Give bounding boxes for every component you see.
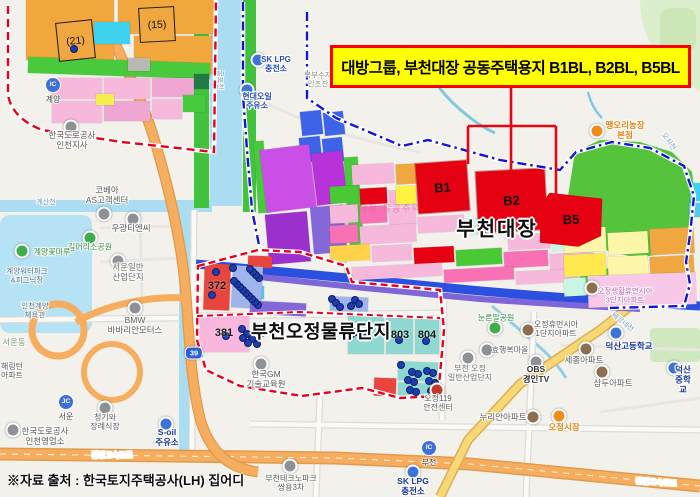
map-label: 서운일반 산업단지 bbox=[112, 263, 143, 283]
map-label: 인천계양 체육관 bbox=[21, 302, 49, 319]
map-label: 부천테크노파크 쌍용3차 bbox=[265, 474, 317, 492]
map-label: 오정휴먼시아 1단지아파트 bbox=[534, 320, 578, 338]
map-label: 계산천 bbox=[36, 199, 55, 207]
land-parcel bbox=[300, 110, 323, 136]
map-label: S-oil 주유소 bbox=[155, 428, 178, 448]
poi-marker bbox=[6, 423, 21, 438]
land-parcel bbox=[352, 263, 443, 281]
tree-dot bbox=[397, 361, 405, 369]
badge-name: 부천 bbox=[421, 457, 437, 468]
map-label: 세종아파트 bbox=[564, 356, 603, 366]
land-parcel bbox=[374, 378, 397, 397]
map-label: 현대오일 주유소 bbox=[242, 92, 271, 110]
callout-banner: 대방그룹, 부천대장 공동주택용지 B1BL, B2BL, B5BL bbox=[330, 45, 691, 88]
map-label: 경인고속도로 bbox=[91, 452, 132, 461]
map-label: 해링턴 아파트 bbox=[1, 362, 23, 380]
land-parcel bbox=[323, 111, 345, 136]
jc-icon: JC bbox=[58, 394, 74, 410]
tree-dot bbox=[408, 368, 416, 376]
tree-dot bbox=[336, 303, 344, 311]
map-label: 눈른말공원 bbox=[478, 313, 515, 322]
map-label: OBS 경인TV bbox=[523, 365, 550, 385]
tree-dot bbox=[230, 277, 238, 285]
poi-marker bbox=[128, 301, 143, 316]
land-parcel bbox=[194, 74, 209, 89]
map-label: 한국도로공사 인천지사 bbox=[49, 131, 96, 151]
land-parcel bbox=[649, 227, 694, 255]
jc-badge: JC서운 bbox=[58, 394, 74, 422]
tree-dot bbox=[406, 386, 414, 394]
land-parcel bbox=[690, 183, 700, 201]
land-parcel bbox=[330, 204, 359, 223]
map-label: 누리안아파트 bbox=[480, 413, 527, 423]
zone-block-21: (21) bbox=[55, 19, 96, 62]
ic-icon: IC bbox=[421, 440, 437, 456]
map-label: 덕산고등학교 bbox=[606, 342, 653, 352]
tree-dot bbox=[423, 367, 431, 375]
zone-block-15: (15) bbox=[138, 6, 176, 43]
land-parcel bbox=[456, 248, 503, 266]
map-label: 오정119 안전센터 bbox=[423, 394, 452, 412]
map-label: 오쇠천 bbox=[659, 132, 677, 152]
map-label: 길머리소공원 bbox=[68, 242, 112, 251]
map-label: 한국도로공사 인천영업소 bbox=[22, 427, 69, 447]
land-parcel bbox=[330, 224, 359, 243]
ic-badge: IC부천 bbox=[421, 440, 437, 468]
land-parcel bbox=[94, 22, 130, 44]
land-parcel bbox=[152, 99, 182, 119]
land-parcel bbox=[689, 203, 700, 217]
zone-number: 381 bbox=[215, 327, 233, 339]
land-parcel bbox=[563, 253, 606, 277]
daejang-district-label: 부천대장 bbox=[456, 213, 538, 242]
map-label: 계양꽃마루 bbox=[34, 247, 71, 256]
land-parcel bbox=[414, 246, 455, 264]
zone-number: 372 bbox=[208, 280, 226, 292]
map-canvas: (21) (15) B1 B2 B5 대장 공공주택지구 부천대장 부천오정물류… bbox=[0, 0, 700, 497]
tree-dot bbox=[208, 291, 216, 299]
land-parcel bbox=[564, 277, 587, 296]
tree-dot bbox=[355, 300, 363, 308]
land-parcel bbox=[444, 266, 515, 283]
callout-banner-text: 대방그룹, 부천대장 공동주택용지 B1BL, B2BL, B5BL bbox=[341, 56, 680, 78]
ic-badge: IC계양 bbox=[45, 77, 61, 105]
tree-dot bbox=[246, 265, 254, 273]
tree-dot bbox=[212, 268, 220, 276]
zone-number: 804 bbox=[418, 329, 436, 341]
poi-marker bbox=[488, 321, 503, 336]
land-parcel bbox=[372, 244, 413, 262]
source-note: ※자료 출처 : 한국토지주택공사(LH) 집어디 bbox=[7, 470, 244, 489]
zone-15-label: (15) bbox=[147, 18, 166, 31]
route-badge: 39 bbox=[185, 347, 203, 360]
poi-marker bbox=[283, 459, 298, 474]
map-label: 덕산중학교 bbox=[675, 365, 692, 394]
land-parcel bbox=[96, 94, 114, 105]
block-b2-label: B2 bbox=[503, 193, 520, 209]
land-parcel bbox=[183, 95, 205, 112]
land-parcel bbox=[330, 185, 359, 203]
map-label: 한국GM 기술교육원 bbox=[246, 370, 285, 390]
block-b1: B1 bbox=[415, 160, 469, 213]
poi-marker bbox=[97, 207, 112, 222]
map-label: 부천 오정 일반산업단지 bbox=[448, 364, 492, 382]
map-label: SK LPG 충전소 bbox=[261, 55, 291, 73]
map-label: 땡오리농장 본점 bbox=[605, 121, 644, 141]
badge-name: 계양 bbox=[45, 94, 61, 105]
poi-marker bbox=[590, 124, 605, 139]
land-parcel bbox=[330, 244, 371, 262]
tree-dot bbox=[229, 264, 237, 272]
badge-name: 서운 bbox=[58, 411, 74, 422]
poi-marker bbox=[15, 244, 30, 259]
block-b1-label: B1 bbox=[434, 179, 452, 195]
map-label: 코베아 AS고객센터 bbox=[86, 186, 129, 206]
map-label: 경인고속도로 bbox=[635, 477, 677, 488]
map-label: 오정시장 bbox=[548, 423, 579, 433]
map-label: 삼두아파트 bbox=[593, 379, 632, 389]
map-label: 굴포천 bbox=[215, 70, 223, 89]
map-label: SK LPG 충전소 bbox=[397, 477, 429, 497]
ic-icon: IC bbox=[45, 77, 61, 93]
map-label: 북부수자 인조잔 bbox=[304, 71, 332, 88]
map-label: 오정생활휴먼시아 3단지아파트 bbox=[597, 287, 652, 304]
ojeong-logistics-label: 부천오정물류단지 bbox=[251, 318, 391, 344]
land-parcel bbox=[607, 231, 648, 255]
map-label: 효행복마을 bbox=[492, 345, 529, 354]
land-parcel bbox=[360, 224, 417, 245]
map-label: 서운동 bbox=[2, 338, 25, 348]
land-parcel bbox=[395, 163, 416, 184]
tree-dot bbox=[70, 45, 78, 53]
land-parcel bbox=[259, 144, 316, 213]
map-label: 계양워터파크 &피그닉장 bbox=[6, 267, 47, 284]
zone-number: 803 bbox=[391, 329, 409, 341]
land-parcel bbox=[128, 58, 150, 71]
land-parcel bbox=[352, 163, 395, 185]
tree-dot bbox=[404, 376, 412, 384]
poi-marker bbox=[526, 410, 541, 425]
map-label: BMW 바바리안모터스 bbox=[108, 316, 163, 336]
block-b5-label: B5 bbox=[562, 212, 579, 228]
map-label: 우광티엔씨 bbox=[111, 224, 150, 234]
map-label: 청기와 장례식장 bbox=[90, 413, 119, 431]
